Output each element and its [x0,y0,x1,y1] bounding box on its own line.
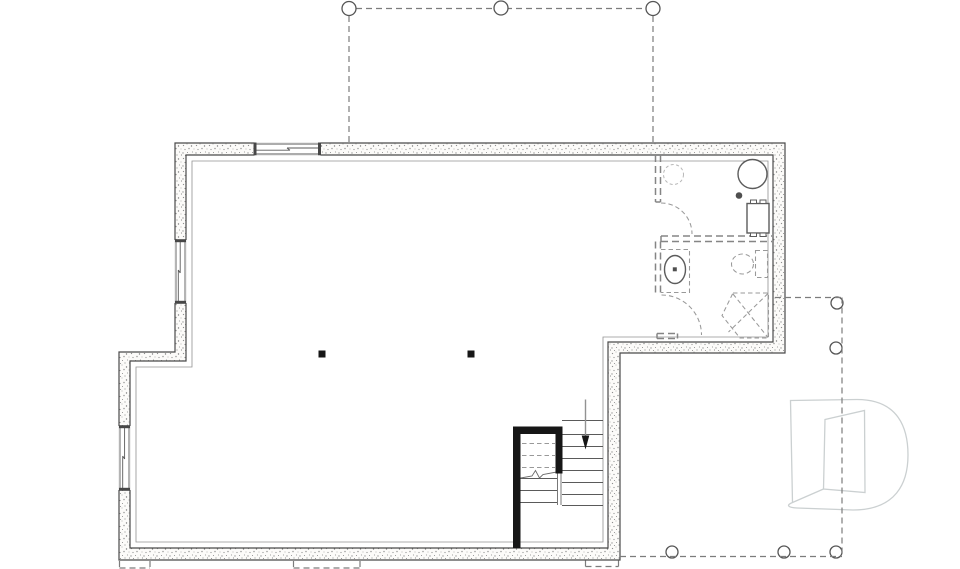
window-left-lower-cap-bottom [119,488,130,491]
future-fixture-dashed-circle [664,165,684,185]
window-left-upper-cap-top [175,239,186,242]
appliance-tab-3 [751,233,757,237]
stair-enclosure-wall [513,427,563,549]
appliance-body [747,204,769,234]
window-top-cap-right [318,143,321,156]
stair-down-arrow-head [582,436,590,450]
window-well-right [586,561,619,567]
deck-post-right-2 [830,342,842,354]
window-left-lower-cap-top [119,425,130,428]
steel-column-left [319,351,326,358]
window-top-cap-left [254,143,257,156]
stair-treads-right-flight [562,421,603,506]
appliance-tab-1 [751,200,757,204]
deck-post-right-1 [831,297,843,309]
floor-plan-canvas [0,0,960,569]
future-partition-mech-left [656,155,661,202]
deck-post-top-right [646,2,660,16]
door-swing-arc-bath [662,295,702,335]
builder-logo-watermark [789,400,908,511]
stair-break-line [518,471,562,479]
window-well-left [120,561,151,568]
floor-drain [736,192,743,199]
future-toilet-bowl [732,254,754,274]
appliance-tab-2 [760,200,766,204]
floor-plan [0,0,960,569]
future-partition-bath-left [656,242,661,294]
future-sink-drain-dot [673,267,677,271]
exterior-foundation-wall [119,143,785,560]
future-partition-bath-stub [657,334,678,339]
appliance-tab-4 [760,233,766,237]
future-corner-shower-diagonals [729,294,769,338]
stair-header-dashed [522,444,555,468]
deck-above-dashed-outline-top [349,9,653,143]
deck-post-top-middle [494,1,508,15]
deck-post-top-left [342,2,356,16]
steel-column-right [468,351,475,358]
stair-treads-left-flight [520,479,557,503]
window-left-upper-cap-bottom [175,301,186,304]
window-well-center [294,561,361,568]
future-toilet-tank [756,251,768,278]
water-tank [738,160,767,189]
door-swing-arc-mech [661,203,692,234]
